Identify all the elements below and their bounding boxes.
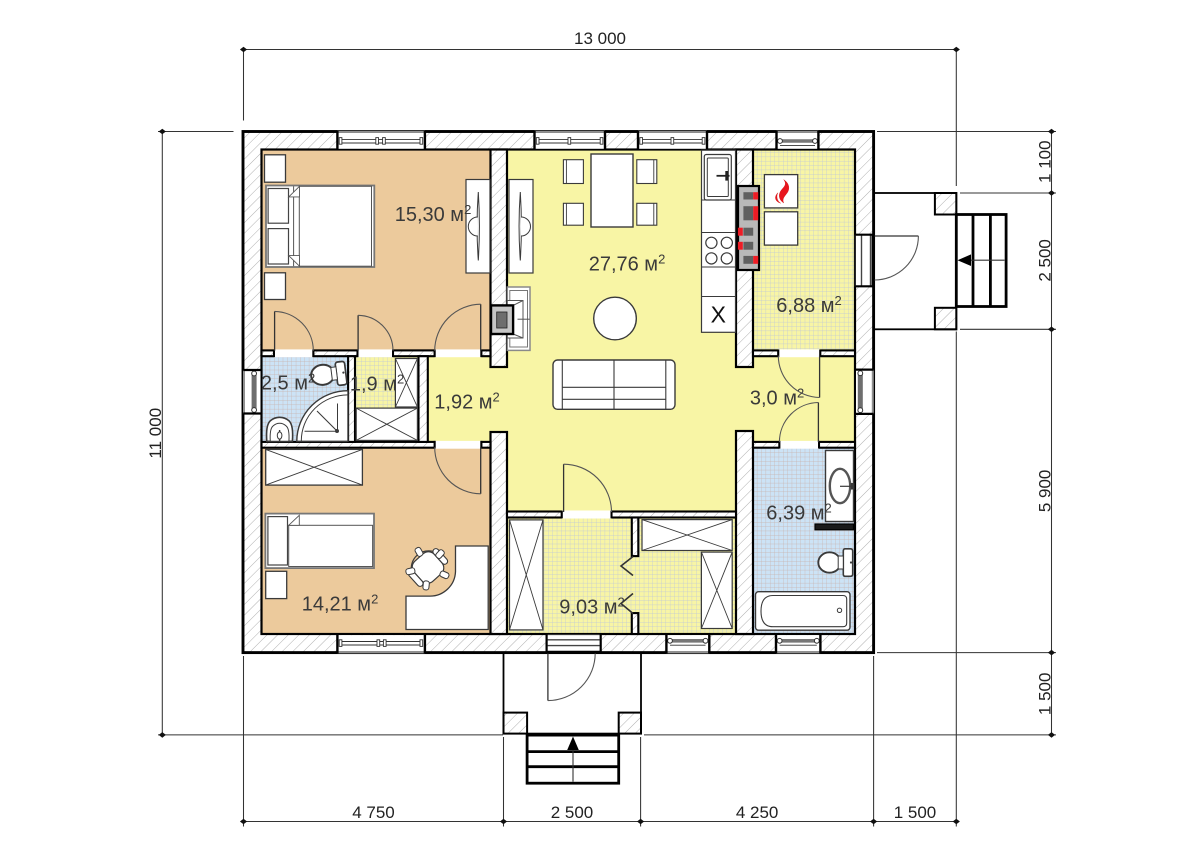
svg-text:2,5 м2: 2,5 м2: [261, 371, 315, 395]
svg-text:13 000: 13 000: [574, 29, 626, 48]
svg-text:6,88 м2: 6,88 м2: [776, 293, 841, 317]
svg-text:1 500: 1 500: [894, 803, 937, 822]
svg-text:14,21 м2: 14,21 м2: [302, 592, 379, 616]
svg-text:4 250: 4 250: [736, 803, 779, 822]
svg-text:X: X: [711, 302, 726, 328]
svg-text:11 000: 11 000: [146, 408, 165, 459]
svg-text:15,30 м2: 15,30 м2: [395, 202, 472, 226]
svg-text:6,39 м2: 6,39 м2: [766, 501, 831, 525]
svg-text:9,03 м2: 9,03 м2: [559, 595, 624, 619]
svg-text:3,0 м2: 3,0 м2: [750, 386, 804, 410]
svg-text:2 500: 2 500: [551, 803, 594, 822]
svg-text:27,76 м2: 27,76 м2: [589, 252, 666, 276]
svg-text:4 750: 4 750: [352, 803, 395, 822]
svg-text:2 500: 2 500: [1035, 239, 1054, 282]
svg-text:1 500: 1 500: [1035, 673, 1054, 716]
svg-text:1,9 м2: 1,9 м2: [350, 372, 404, 396]
svg-text:1,92 м2: 1,92 м2: [434, 390, 499, 414]
svg-text:5 900: 5 900: [1035, 470, 1054, 513]
svg-text:1 100: 1 100: [1035, 140, 1054, 183]
